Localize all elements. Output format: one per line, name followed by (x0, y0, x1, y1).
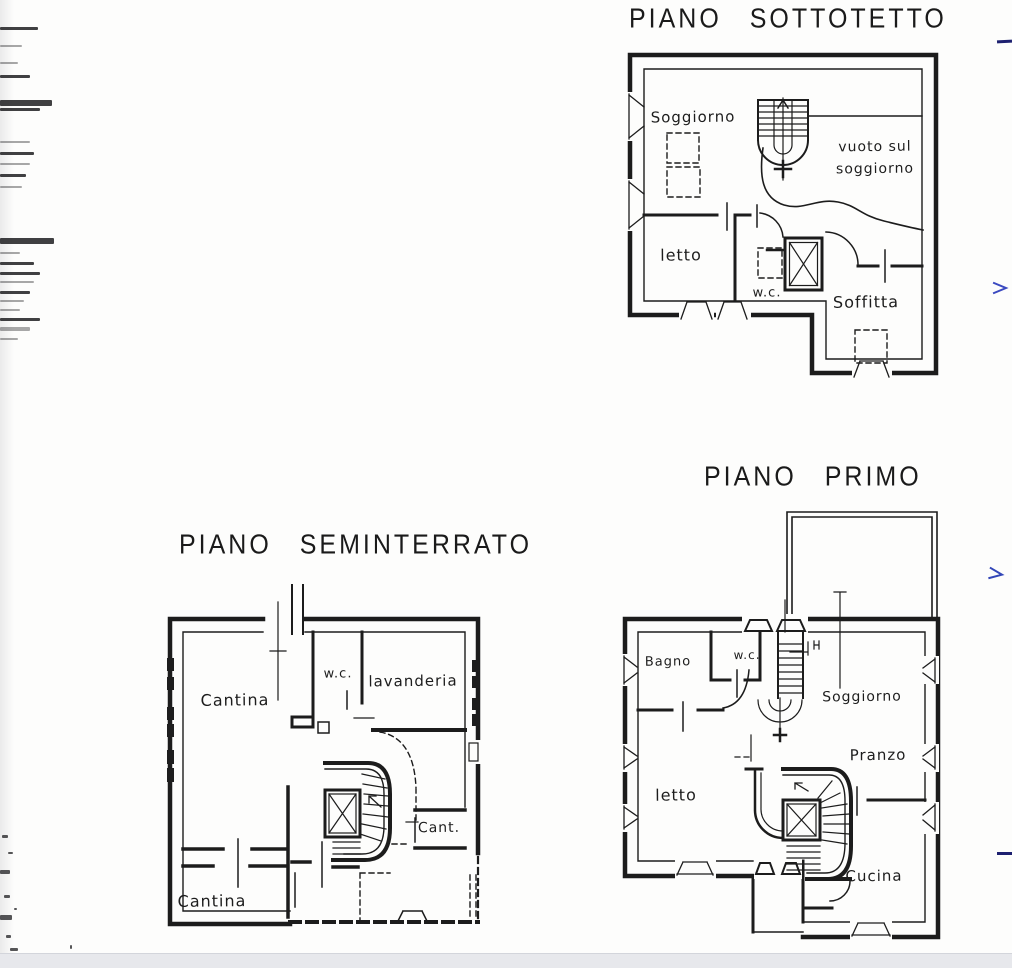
room-label-soggiorno-primo: Soggiorno (822, 689, 902, 706)
room-label-soggiorno-sottotetto: Soggiorno (651, 108, 736, 127)
staircase-icon (325, 763, 390, 860)
room-label-wc-seminterrato: w.c. (323, 666, 352, 681)
exterior-walls (170, 619, 478, 924)
room-label-letto-sottotetto: letto (660, 245, 702, 264)
room-label-wc-primo: w.c. (733, 648, 760, 662)
floor-plan-seminterrato-drawing (158, 578, 494, 944)
elevator-shaft-icon (785, 238, 822, 290)
scan-annotation-mark (992, 280, 1010, 296)
scan-annotation-mark (987, 565, 1007, 583)
scanned-floor-plan-document: PIANO SOTTOTETTO PIANO SEMINTERRATO PIAN… (0, 0, 1012, 968)
plan-title-sottotetto: PIANO SOTTOTETTO (629, 3, 947, 35)
room-label-letto-primo: letto (655, 785, 697, 804)
room-label-bagno: Bagno (645, 654, 691, 669)
terrace-door-leaf (785, 592, 846, 688)
room-label-soffitta: Soffitta (833, 292, 899, 312)
floor-level-cross-icon (774, 729, 786, 741)
scan-annotation-mark (997, 852, 1012, 855)
wc-fixture-outline (758, 248, 782, 278)
upper-staircase-icon (758, 632, 819, 741)
room-label-cucina: Cucina (845, 867, 902, 886)
elevator-shaft-icon (325, 790, 360, 837)
room-label-vuoto-line1: vuoto sul (838, 139, 911, 156)
room-label-vuoto-line2: soggiorno (836, 161, 914, 178)
room-label-cant: Cant. (418, 820, 460, 836)
room-label-wc-sottotetto: w.c. (752, 285, 781, 300)
entry-gate-icon (270, 585, 303, 700)
plan-title-primo: PIANO PRIMO (704, 461, 922, 493)
terrace-parapet (787, 512, 937, 619)
scan-bottom-strip (0, 953, 1012, 968)
scan-annotation-mark (997, 40, 1012, 44)
elevator-shaft-icon (783, 800, 820, 840)
staircase-icon (758, 98, 808, 180)
curved-wall (735, 735, 783, 838)
plan-title-seminterrato: PIANO SEMINTERRATO (179, 529, 532, 561)
room-label-cantina-nord: Cantina (201, 690, 270, 710)
floor-plan-sottotetto-drawing (626, 48, 942, 384)
room-label-pranzo: Pranzo (850, 746, 907, 765)
room-label-cantina-sud: Cantina (178, 891, 247, 911)
scan-edge-shade (0, 0, 14, 968)
room-label-lavanderia: lavanderia (368, 672, 457, 691)
